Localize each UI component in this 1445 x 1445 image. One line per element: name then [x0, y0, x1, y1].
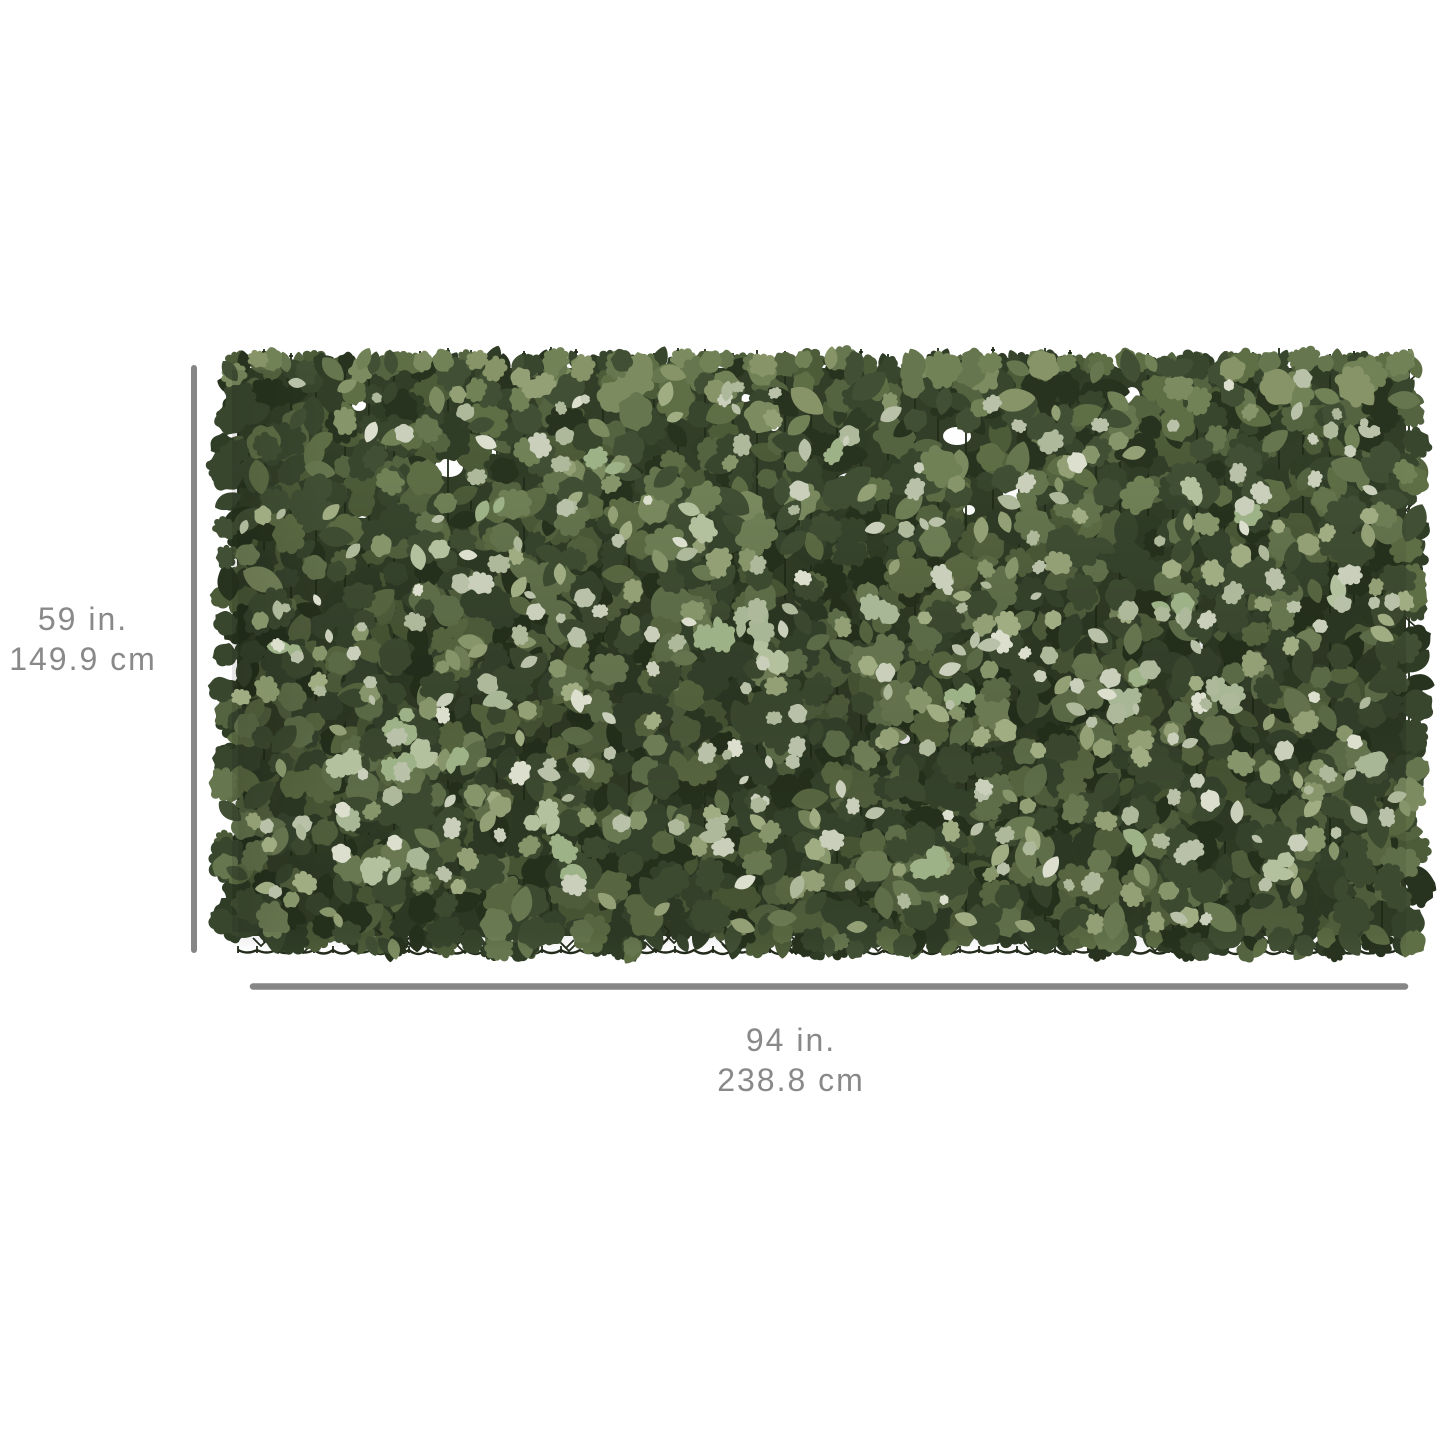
svg-text:94 in.: 94 in.: [746, 1022, 836, 1058]
svg-text:149.9 cm: 149.9 cm: [9, 641, 157, 677]
svg-text:59 in.: 59 in.: [38, 601, 128, 637]
svg-text:238.8 cm: 238.8 cm: [717, 1062, 865, 1098]
